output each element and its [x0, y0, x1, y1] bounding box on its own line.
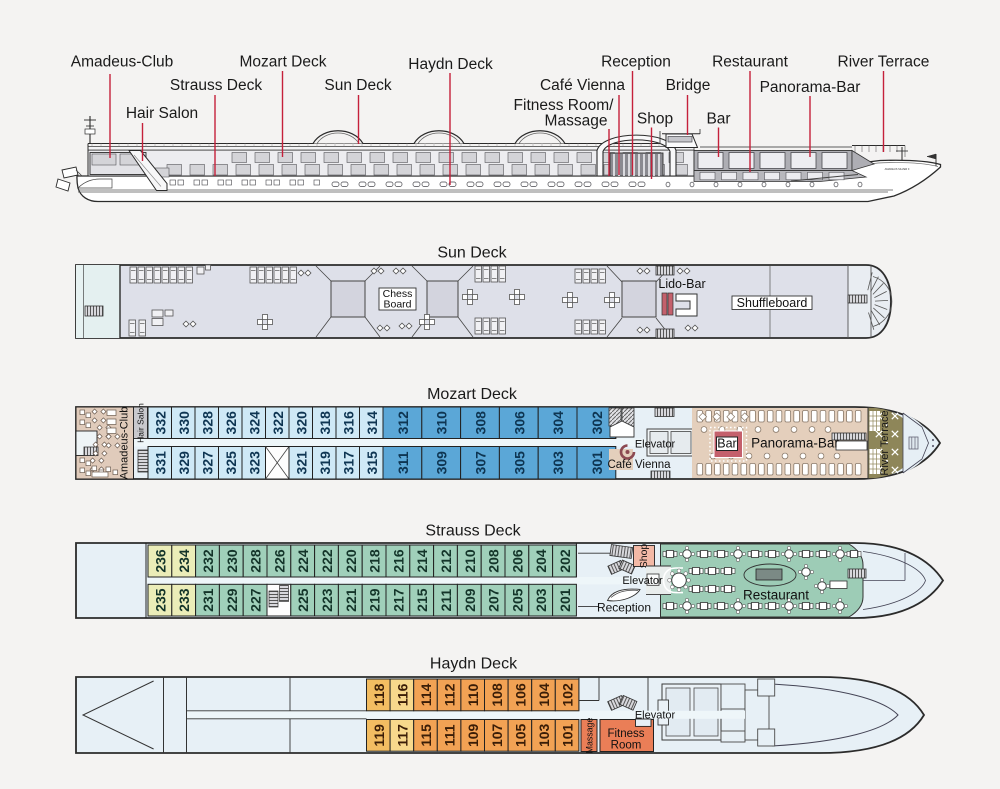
- svg-text:311: 311: [395, 451, 411, 474]
- svg-text:314: 314: [364, 411, 380, 435]
- svg-text:Sun Deck: Sun Deck: [437, 245, 507, 262]
- svg-text:114: 114: [418, 683, 434, 706]
- svg-text:231: 231: [200, 588, 216, 612]
- svg-text:330: 330: [176, 411, 192, 435]
- svg-text:Restaurant: Restaurant: [743, 588, 809, 603]
- svg-text:Café Vienna: Café Vienna: [540, 77, 625, 94]
- svg-text:214: 214: [414, 549, 430, 573]
- svg-text:234: 234: [176, 549, 192, 573]
- svg-text:Strauss Deck: Strauss Deck: [425, 523, 521, 540]
- svg-text:Shop: Shop: [638, 544, 650, 569]
- svg-text:Restaurant: Restaurant: [712, 54, 789, 71]
- svg-text:Amadeus-Club: Amadeus-Club: [119, 407, 131, 480]
- svg-text:224: 224: [295, 549, 311, 573]
- svg-text:109: 109: [465, 723, 481, 747]
- svg-text:222: 222: [319, 549, 335, 573]
- svg-text:Panorama-Bar: Panorama-Bar: [751, 436, 839, 451]
- svg-text:212: 212: [438, 549, 454, 573]
- svg-text:329: 329: [176, 451, 192, 475]
- svg-text:305: 305: [511, 451, 527, 475]
- svg-text:Fitness Room/: Fitness Room/: [514, 97, 615, 114]
- svg-text:111: 111: [442, 724, 458, 746]
- svg-text:Bridge: Bridge: [666, 77, 711, 94]
- svg-text:116: 116: [394, 683, 410, 706]
- svg-text:221: 221: [343, 588, 359, 612]
- svg-text:205: 205: [509, 588, 525, 612]
- svg-text:308: 308: [473, 411, 489, 435]
- svg-text:Hair Salon: Hair Salon: [126, 105, 198, 122]
- svg-text:Strauss Deck: Strauss Deck: [170, 77, 262, 94]
- svg-text:220: 220: [343, 549, 359, 573]
- svg-text:301: 301: [589, 451, 605, 475]
- svg-text:312: 312: [395, 411, 411, 435]
- svg-text:118: 118: [371, 683, 387, 706]
- svg-text:328: 328: [199, 411, 215, 435]
- svg-text:Elevator: Elevator: [622, 575, 663, 587]
- svg-text:306: 306: [511, 411, 527, 435]
- svg-text:331: 331: [152, 451, 168, 475]
- svg-text:106: 106: [512, 683, 528, 707]
- svg-text:307: 307: [473, 451, 489, 475]
- svg-text:Board: Board: [383, 299, 411, 311]
- svg-text:316: 316: [340, 411, 356, 435]
- svg-text:236: 236: [152, 549, 168, 573]
- svg-text:Amadeus-Club: Amadeus-Club: [71, 54, 174, 71]
- svg-text:River Terrace: River Terrace: [838, 54, 930, 71]
- svg-text:Hair Salon: Hair Salon: [136, 403, 146, 443]
- svg-text:Shuffleboard: Shuffleboard: [737, 296, 808, 310]
- svg-text:101: 101: [560, 723, 576, 747]
- svg-text:Massage: Massage: [545, 113, 608, 130]
- svg-text:216: 216: [390, 549, 406, 573]
- svg-text:Shop: Shop: [637, 111, 673, 128]
- svg-text:226: 226: [271, 549, 287, 573]
- svg-text:215: 215: [414, 588, 430, 612]
- svg-text:317: 317: [340, 451, 356, 475]
- svg-text:230: 230: [224, 549, 240, 573]
- svg-text:115: 115: [418, 724, 434, 747]
- svg-text:Reception: Reception: [597, 601, 651, 615]
- svg-text:207: 207: [486, 588, 502, 612]
- svg-text:217: 217: [390, 588, 406, 612]
- svg-text:Elevator: Elevator: [635, 439, 676, 451]
- svg-text:219: 219: [367, 588, 383, 612]
- svg-text:105: 105: [512, 723, 528, 747]
- svg-text:Sun Deck: Sun Deck: [324, 77, 391, 94]
- svg-text:325: 325: [223, 451, 239, 475]
- svg-text:302: 302: [589, 411, 605, 435]
- svg-text:Bar: Bar: [706, 111, 730, 128]
- svg-text:324: 324: [246, 411, 262, 435]
- svg-text:Bar: Bar: [717, 437, 736, 451]
- svg-text:208: 208: [486, 549, 502, 573]
- svg-text:315: 315: [364, 451, 380, 475]
- svg-text:210: 210: [462, 549, 478, 573]
- svg-text:326: 326: [223, 411, 239, 435]
- svg-text:Fitness: Fitness: [607, 728, 644, 740]
- svg-text:209: 209: [462, 588, 478, 612]
- svg-text:203: 203: [533, 588, 549, 612]
- svg-text:Lido-Bar: Lido-Bar: [658, 277, 705, 291]
- svg-text:107: 107: [489, 723, 505, 747]
- svg-text:303: 303: [550, 451, 566, 475]
- svg-text:304: 304: [550, 411, 566, 435]
- svg-text:332: 332: [152, 411, 168, 435]
- svg-text:235: 235: [152, 588, 168, 612]
- svg-text:103: 103: [536, 723, 552, 747]
- svg-text:233: 233: [176, 588, 192, 612]
- svg-text:Café Vienna: Café Vienna: [607, 459, 671, 471]
- svg-text:319: 319: [317, 451, 333, 475]
- svg-text:112: 112: [442, 683, 458, 706]
- svg-text:202: 202: [557, 549, 573, 573]
- svg-text:228: 228: [248, 549, 264, 573]
- svg-text:108: 108: [489, 683, 505, 707]
- svg-text:Reception: Reception: [601, 54, 671, 71]
- svg-text:223: 223: [319, 588, 335, 612]
- svg-text:310: 310: [434, 411, 450, 435]
- svg-text:119: 119: [371, 724, 387, 747]
- svg-text:227: 227: [248, 588, 264, 612]
- svg-text:321: 321: [293, 451, 309, 475]
- svg-text:318: 318: [317, 411, 333, 435]
- svg-text:104: 104: [536, 683, 552, 707]
- svg-text:Haydn Deck: Haydn Deck: [430, 656, 518, 673]
- svg-text:Room: Room: [611, 740, 642, 752]
- svg-text:309: 309: [434, 451, 450, 475]
- svg-text:Haydn Deck: Haydn Deck: [408, 56, 493, 73]
- svg-text:201: 201: [557, 588, 573, 612]
- svg-text:232: 232: [200, 549, 216, 573]
- svg-text:117: 117: [394, 724, 410, 747]
- svg-text:110: 110: [465, 683, 481, 706]
- svg-text:Mozart Deck: Mozart Deck: [240, 54, 327, 71]
- svg-text:Mozart Deck: Mozart Deck: [427, 386, 518, 403]
- svg-text:218: 218: [367, 549, 383, 573]
- svg-text:320: 320: [293, 411, 309, 435]
- svg-text:River Terrace: River Terrace: [879, 410, 891, 475]
- svg-text:102: 102: [560, 683, 576, 707]
- svg-text:Panorama-Bar: Panorama-Bar: [760, 79, 861, 96]
- svg-text:322: 322: [270, 411, 286, 435]
- svg-text:327: 327: [199, 451, 215, 475]
- svg-text:Massage: Massage: [585, 718, 595, 754]
- svg-text:229: 229: [224, 588, 240, 612]
- svg-text:AMADEUS SILVER II: AMADEUS SILVER II: [885, 167, 910, 171]
- svg-text:225: 225: [295, 588, 311, 612]
- svg-text:204: 204: [533, 549, 549, 573]
- svg-text:206: 206: [509, 549, 525, 573]
- svg-text:211: 211: [438, 589, 454, 612]
- svg-text:323: 323: [246, 451, 262, 475]
